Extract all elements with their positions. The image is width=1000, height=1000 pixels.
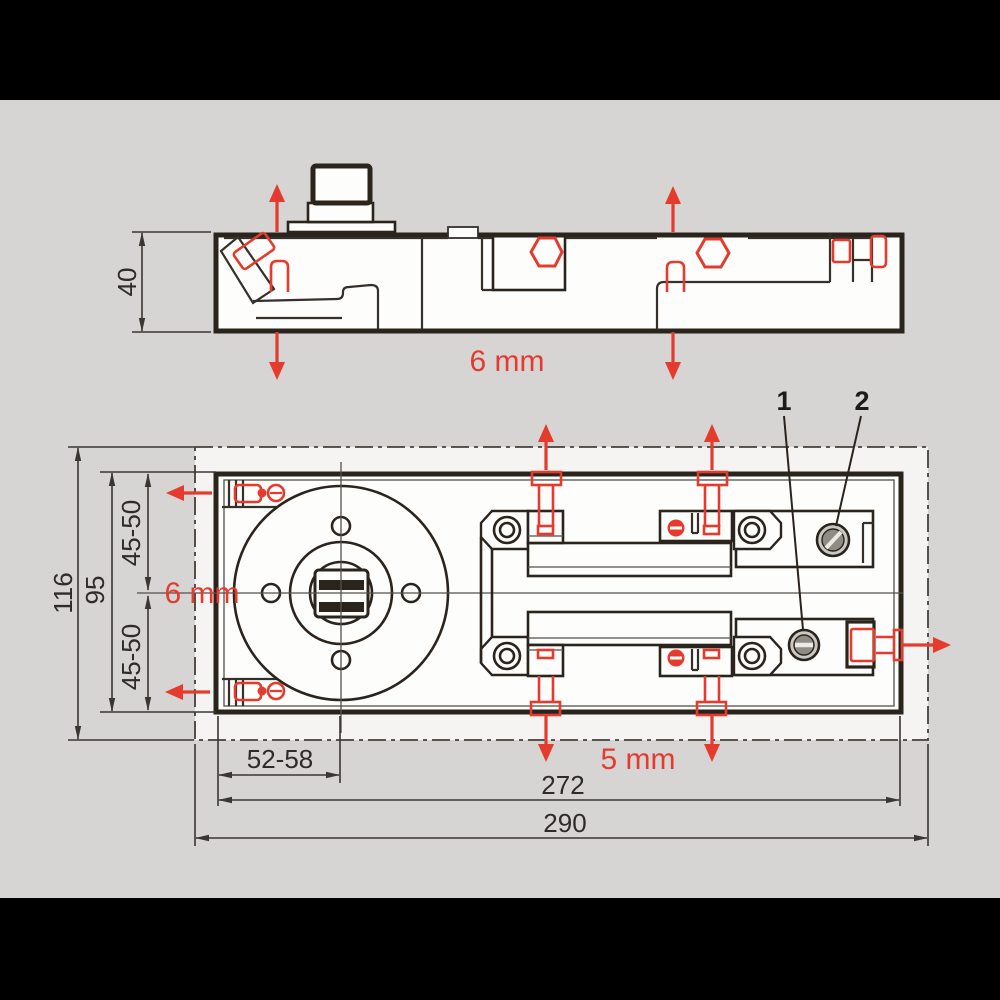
spindle-top-square (313, 166, 370, 203)
valve-screw-1 (789, 630, 819, 660)
dim-95-label: 95 (80, 576, 110, 605)
spindle-base-plate (288, 222, 395, 232)
dim-45-50-bottom-label: 45-50 (116, 624, 146, 691)
dim-272-label: 272 (541, 770, 584, 800)
plan-view: 1 2 (48, 386, 951, 846)
callout-1-label: 1 (776, 386, 791, 416)
dim-45-50-top-label: 45-50 (116, 500, 146, 567)
valve-screw-2 (817, 524, 849, 556)
longitudinal-adjust-label: 5 mm (601, 743, 676, 776)
dim-52-58-label: 52-58 (247, 744, 314, 774)
dim-116-label: 116 (48, 572, 78, 613)
technical-drawing-page: 6 mm 40 (0, 0, 1000, 1000)
side-view: 6 mm 40 (112, 166, 902, 380)
floor-spring-drawing: 6 mm 40 (0, 0, 1000, 1000)
dim-40: 40 (112, 232, 211, 332)
cover-plate-notch (448, 227, 478, 238)
spindle-mid-step (308, 203, 373, 222)
dim-290-label: 290 (543, 808, 586, 838)
side-vertical-adjust-label: 6 mm (470, 345, 545, 378)
lateral-adjust-label: 6 mm (165, 577, 240, 610)
dim-40-label: 40 (112, 268, 142, 297)
callout-2-label: 2 (854, 386, 869, 416)
